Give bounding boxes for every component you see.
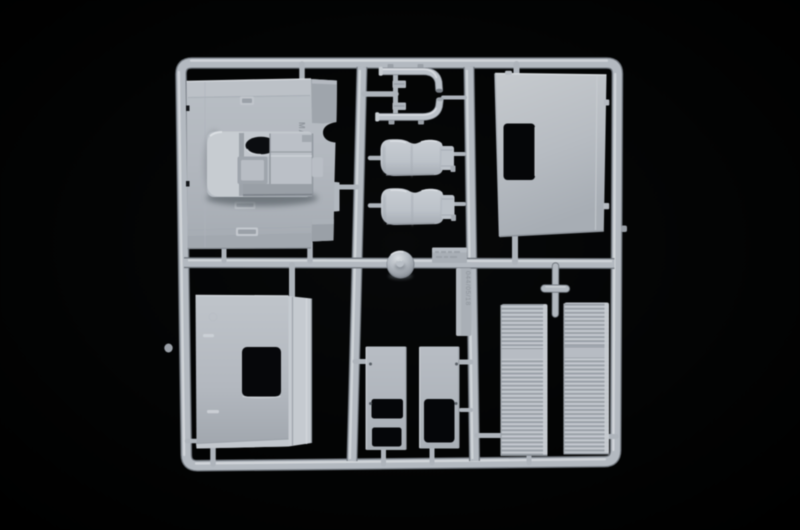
svg-text:044/05/18: 044/05/18	[464, 271, 471, 306]
